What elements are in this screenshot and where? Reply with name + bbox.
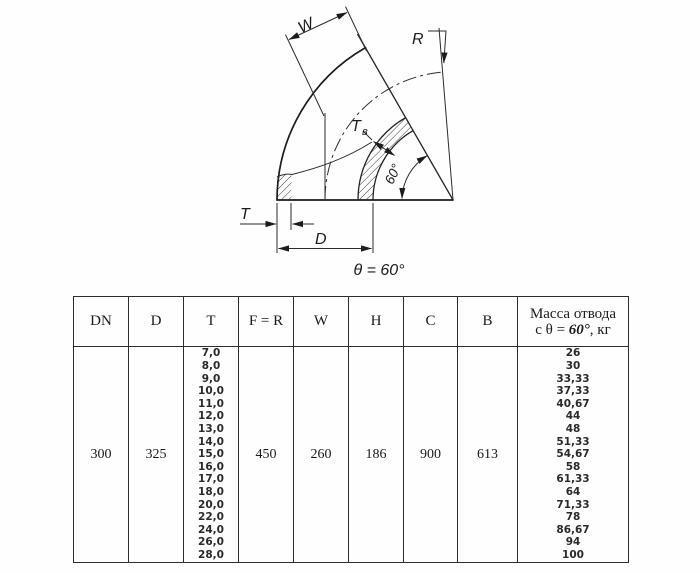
value-line: 28,0 [184, 549, 238, 562]
value-line: 26 [518, 347, 628, 360]
value-line: 15,0 [184, 448, 238, 461]
value-line: 64 [518, 486, 628, 499]
d-dimension-label: D [315, 231, 327, 248]
w-dimension-label: W [296, 14, 319, 37]
value-line: 94 [518, 536, 628, 549]
mass-header-line2: с θ = 60°, кг [518, 322, 628, 338]
value-line: 22,0 [184, 511, 238, 524]
header-row: DN D T F = R W H C B Масса отвода с θ = … [74, 297, 629, 347]
value-line: 12,0 [184, 410, 238, 423]
elbow-drawing: W R Т в 60° T D θ = 60° [0, 0, 700, 292]
value-line: 78 [518, 511, 628, 524]
value-line: 13,0 [184, 423, 238, 436]
cell-d: 325 [129, 347, 184, 563]
page: W R Т в 60° T D θ = 60° DN D T F = R W H… [0, 0, 700, 573]
tb-dimension-subscript: в [362, 126, 368, 138]
value-line: 8,0 [184, 360, 238, 373]
cell-mass-values: 263033,3337,3340,67444851,3354,675861,33… [518, 347, 629, 563]
header-w: W [294, 297, 349, 347]
cell-dn: 300 [74, 347, 129, 563]
cell-h: 186 [349, 347, 404, 563]
value-line: 9,0 [184, 373, 238, 386]
value-line: 61,33 [518, 473, 628, 486]
cell-b: 613 [458, 347, 518, 563]
table-row: 300 325 7,08,09,010,011,012,013,014,015,… [74, 347, 629, 563]
cell-fr: 450 [239, 347, 294, 563]
value-line: 17,0 [184, 473, 238, 486]
value-line: 40,67 [518, 398, 628, 411]
dimensions-table: DN D T F = R W H C B Масса отвода с θ = … [73, 296, 629, 563]
value-line: 11,0 [184, 398, 238, 411]
mass-header-line1: Масса отвода [518, 306, 628, 322]
cell-t-values: 7,08,09,010,011,012,013,014,015,016,017,… [184, 347, 239, 563]
cell-c: 900 [404, 347, 458, 563]
value-line: 18,0 [184, 486, 238, 499]
r-dimension-label: R [412, 31, 424, 48]
value-line: 100 [518, 549, 628, 562]
value-line: 33,33 [518, 373, 628, 386]
value-line: 51,33 [518, 436, 628, 449]
value-line: 7,0 [184, 347, 238, 360]
value-line: 20,0 [184, 499, 238, 512]
header-b: B [458, 297, 518, 347]
angle-label: 60° [382, 161, 404, 186]
header-t: T [184, 297, 239, 347]
value-line: 16,0 [184, 461, 238, 474]
header-c: C [404, 297, 458, 347]
wall-section-hatch [278, 118, 414, 200]
value-line: 26,0 [184, 536, 238, 549]
value-line: 44 [518, 410, 628, 423]
value-line: 30 [518, 360, 628, 373]
value-line: 10,0 [184, 385, 238, 398]
cell-w: 260 [294, 347, 349, 563]
value-line: 86,67 [518, 524, 628, 537]
value-line: 58 [518, 461, 628, 474]
tb-dimension-label: Т [351, 118, 362, 135]
value-line: 48 [518, 423, 628, 436]
header-h: H [349, 297, 404, 347]
value-line: 14,0 [184, 436, 238, 449]
t-dimension-label: T [240, 206, 251, 223]
value-line: 54,67 [518, 448, 628, 461]
header-dn: DN [74, 297, 129, 347]
header-d: D [129, 297, 184, 347]
value-line: 37,33 [518, 385, 628, 398]
header-mass: Масса отвода с θ = 60°, кг [518, 297, 629, 347]
value-line: 71,33 [518, 499, 628, 512]
drawing-caption: θ = 60° [353, 262, 405, 279]
header-fr: F = R [239, 297, 294, 347]
value-line: 24,0 [184, 524, 238, 537]
